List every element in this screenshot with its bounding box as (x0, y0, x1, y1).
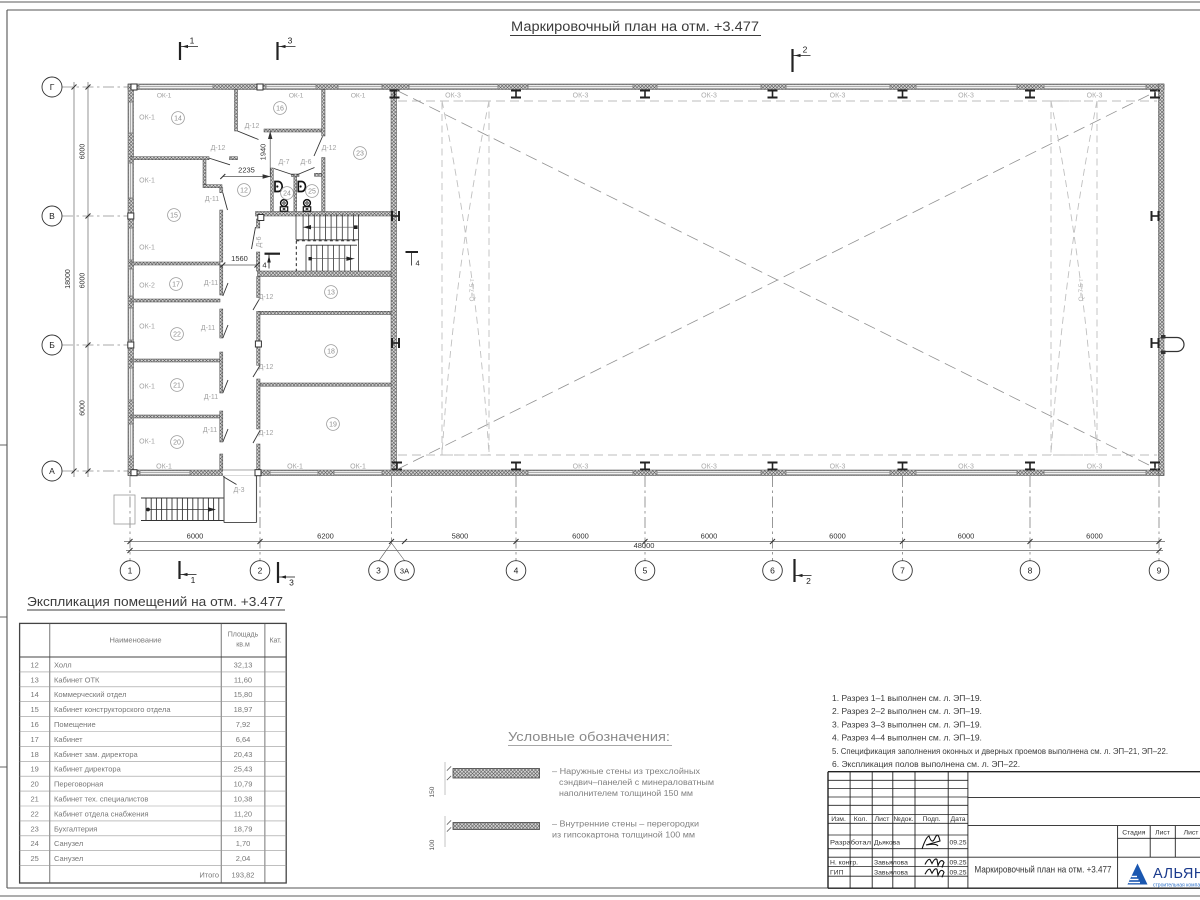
svg-text:6. Экспликация полов выполнена: 6. Экспликация полов выполнена см. л. ЭП… (832, 759, 1020, 769)
svg-text:Д-11: Д-11 (203, 427, 217, 434)
svg-text:ОК-3: ОК-3 (958, 93, 974, 100)
svg-text:ОК-3: ОК-3 (830, 93, 846, 100)
svg-text:ОК-3: ОК-3 (701, 464, 717, 471)
svg-text:Маркировочный план на отм. +3.: Маркировочный план на отм. +3.477 (975, 865, 1112, 876)
svg-text:Н. контр.: Н. контр. (830, 860, 858, 867)
svg-text:6,64: 6,64 (236, 735, 251, 744)
svg-text:ОК-1: ОК-1 (139, 384, 155, 391)
svg-text:21: 21 (31, 795, 39, 804)
svg-text:Д-3: Д-3 (234, 487, 245, 494)
svg-text:5. Спецификация заполнения око: 5. Спецификация заполнения оконных и две… (832, 746, 1168, 756)
svg-text:Кабинет: Кабинет (54, 735, 83, 744)
svg-text:Переговорная: Переговорная (54, 780, 103, 789)
svg-text:Завьялова: Завьялова (874, 869, 908, 876)
svg-text:ОК-1: ОК-1 (157, 93, 172, 100)
svg-text:2: 2 (258, 566, 263, 576)
svg-text:20,43: 20,43 (234, 750, 253, 759)
svg-text:№док.: №док. (894, 816, 914, 823)
svg-text:14: 14 (31, 690, 39, 699)
svg-text:Кол.: Кол. (854, 816, 868, 823)
svg-text:09.25: 09.25 (949, 840, 966, 847)
svg-text:Подп.: Подп. (922, 816, 940, 823)
svg-text:6000: 6000 (958, 532, 975, 541)
svg-text:19: 19 (31, 765, 39, 774)
svg-text:11,60: 11,60 (234, 675, 252, 684)
svg-text:16: 16 (276, 106, 284, 113)
svg-text:наполнителем толщиной 150 мм: наполнителем толщиной 150 мм (559, 789, 693, 798)
svg-text:Кабинет конструкторского отдел: Кабинет конструкторского отдела (54, 705, 171, 714)
svg-text:6000: 6000 (80, 273, 87, 289)
svg-text:Завьялова: Завьялова (874, 860, 908, 867)
svg-text:18000: 18000 (65, 269, 72, 289)
svg-text:13: 13 (327, 290, 335, 297)
svg-text:2: 2 (806, 576, 811, 586)
svg-text:ОК-3: ОК-3 (573, 464, 589, 471)
svg-text:ОК-1: ОК-1 (289, 93, 304, 100)
svg-text:7,92: 7,92 (236, 720, 251, 729)
svg-text:1: 1 (190, 36, 195, 46)
svg-text:Экспликация помещений на отм.: Экспликация помещений на отм. +3.477 (27, 594, 283, 609)
svg-text:6000: 6000 (80, 400, 87, 416)
svg-text:22: 22 (31, 809, 39, 818)
svg-text:17: 17 (172, 282, 180, 289)
svg-text:32,13: 32,13 (234, 660, 253, 669)
svg-text:Д-11: Д-11 (204, 394, 218, 401)
svg-text:ОК-1: ОК-1 (139, 324, 155, 331)
svg-text:сэндвич–панелей с минераловатн: сэндвич–панелей с минераловатным (559, 778, 714, 787)
svg-text:Холл: Холл (54, 660, 72, 669)
svg-text:Д-12: Д-12 (211, 145, 226, 152)
svg-text:5: 5 (643, 566, 648, 576)
svg-text:8: 8 (1028, 566, 1033, 576)
svg-text:ОК-3: ОК-3 (701, 93, 717, 100)
svg-text:48000: 48000 (634, 541, 655, 550)
svg-text:ОК-1: ОК-1 (350, 464, 366, 471)
svg-text:кв.м: кв.м (236, 642, 250, 649)
svg-text:ОК-1: ОК-1 (351, 93, 366, 100)
svg-text:1,70: 1,70 (236, 839, 251, 848)
svg-text:ОК-1: ОК-1 (287, 464, 303, 471)
svg-text:6200: 6200 (317, 532, 334, 541)
svg-text:4. Разрез 4–4 выполнен см. л.: 4. Разрез 4–4 выполнен см. л. ЭП–19. (832, 733, 982, 743)
svg-text:– Наружные стены из трехслойны: – Наружные стены из трехслойных (552, 767, 700, 776)
svg-text:из гипсокартона толщиной 100 м: из гипсокартона толщиной 100 мм (552, 831, 695, 840)
svg-text:24: 24 (283, 191, 291, 198)
svg-text:4: 4 (514, 566, 519, 576)
svg-text:Кабинет отдела снабжения: Кабинет отдела снабжения (54, 809, 149, 818)
svg-text:24: 24 (31, 839, 39, 848)
svg-text:Д-12: Д-12 (245, 123, 260, 130)
svg-text:20: 20 (31, 780, 39, 789)
svg-text:1: 1 (128, 566, 133, 576)
svg-text:ОК-3: ОК-3 (958, 464, 974, 471)
svg-text:В: В (49, 211, 55, 221)
svg-text:10,38: 10,38 (234, 795, 253, 804)
svg-text:09.25: 09.25 (949, 869, 966, 876)
svg-text:Разработал: Разработал (830, 839, 871, 847)
svg-text:Д-12: Д-12 (259, 294, 274, 301)
svg-text:Д-11: Д-11 (204, 280, 218, 287)
svg-text:3: 3 (289, 578, 294, 588)
svg-text:2: 2 (803, 45, 808, 55)
svg-text:Площадь: Площадь (228, 632, 259, 639)
svg-text:Бухгалтерия: Бухгалтерия (54, 824, 97, 833)
svg-text:Маркировочный план на отм. +3.: Маркировочный план на отм. +3.477 (511, 19, 759, 34)
svg-text:Кабинет тех. специалистов: Кабинет тех. специалистов (54, 795, 148, 804)
svg-text:Дьякова: Дьякова (874, 840, 900, 847)
svg-text:ОК-3: ОК-3 (573, 93, 589, 100)
svg-text:6000: 6000 (572, 532, 589, 541)
svg-text:3: 3 (288, 36, 293, 46)
svg-text:4: 4 (416, 259, 420, 268)
svg-text:Кабинет зам. директора: Кабинет зам. директора (54, 750, 139, 759)
svg-text:21: 21 (173, 383, 181, 390)
svg-text:10,79: 10,79 (234, 780, 253, 789)
svg-text:18,97: 18,97 (234, 705, 253, 714)
svg-text:6000: 6000 (80, 144, 87, 160)
svg-text:Лист: Лист (875, 816, 890, 823)
svg-text:25: 25 (31, 854, 39, 863)
svg-text:Д-12: Д-12 (259, 430, 274, 437)
svg-text:Д-12: Д-12 (259, 364, 274, 371)
svg-text:23: 23 (356, 151, 364, 158)
svg-text:18: 18 (327, 349, 335, 356)
svg-text:Q=7.5 т: Q=7.5 т (1078, 279, 1085, 302)
svg-text:15,80: 15,80 (234, 690, 253, 699)
svg-text:25,43: 25,43 (234, 765, 253, 774)
svg-text:09.25: 09.25 (949, 860, 966, 867)
svg-text:150: 150 (429, 786, 436, 797)
svg-text:15: 15 (170, 213, 178, 220)
svg-text:3: 3 (376, 566, 381, 576)
svg-text:Д-11: Д-11 (205, 196, 219, 203)
svg-text:6000: 6000 (187, 532, 204, 541)
svg-text:Д-7: Д-7 (279, 159, 290, 166)
svg-text:Санузел: Санузел (54, 839, 83, 848)
svg-text:Лист: Лист (1155, 830, 1170, 837)
svg-text:ОК-1: ОК-1 (156, 464, 172, 471)
svg-text:4: 4 (262, 261, 266, 270)
svg-text:1560: 1560 (231, 254, 248, 263)
svg-text:Д-12: Д-12 (322, 145, 337, 152)
svg-text:6000: 6000 (701, 532, 718, 541)
svg-text:16: 16 (31, 720, 39, 729)
svg-text:100: 100 (429, 839, 436, 850)
svg-text:Условные обозначения:: Условные обозначения: (508, 730, 670, 744)
svg-text:6: 6 (770, 566, 775, 576)
svg-text:ОК-2: ОК-2 (139, 283, 155, 290)
svg-text:22: 22 (173, 332, 181, 339)
svg-text:1: 1 (191, 575, 196, 585)
svg-text:15: 15 (31, 705, 39, 714)
svg-text:АЛЬЯНС: АЛЬЯНС (1153, 866, 1200, 882)
svg-text:ГИП: ГИП (830, 869, 844, 876)
svg-text:Кат.: Кат. (269, 638, 281, 645)
svg-text:1940: 1940 (259, 144, 268, 161)
svg-text:193,82: 193,82 (232, 871, 255, 880)
svg-text:2. Разрез 2–2 выполнен см. л.: 2. Разрез 2–2 выполнен см. л. ЭП–19. (832, 706, 982, 716)
svg-text:17: 17 (31, 735, 39, 744)
svg-text:Помещение: Помещение (54, 720, 96, 729)
svg-text:Д-6: Д-6 (301, 159, 312, 166)
svg-text:Г: Г (50, 82, 55, 92)
svg-text:11,20: 11,20 (234, 809, 252, 818)
svg-text:Изм.: Изм. (831, 816, 846, 823)
svg-text:ОК-1: ОК-1 (139, 439, 155, 446)
svg-text:12: 12 (240, 188, 248, 195)
svg-text:ОК-3: ОК-3 (1087, 464, 1103, 471)
svg-text:Д-11: Д-11 (201, 325, 215, 332)
svg-text:Коммерческий отдел: Коммерческий отдел (54, 690, 126, 699)
svg-text:18,79: 18,79 (234, 824, 253, 833)
svg-text:ОК-3: ОК-3 (445, 93, 461, 100)
svg-text:1. Разрез 1–1 выполнен см. л.: 1. Разрез 1–1 выполнен см. л. ЭП–19. (832, 693, 982, 703)
svg-text:Наименование: Наименование (110, 636, 162, 645)
svg-text:А: А (49, 466, 55, 476)
svg-text:7: 7 (900, 566, 905, 576)
svg-text:Дата: Дата (950, 816, 965, 823)
svg-text:9: 9 (1157, 566, 1162, 576)
svg-text:– Внутренние стены – перегород: – Внутренние стены – перегородки (552, 820, 699, 829)
svg-text:23: 23 (31, 824, 39, 833)
svg-text:Б: Б (49, 340, 55, 350)
svg-text:Д-6: Д-6 (256, 236, 263, 247)
svg-text:2235: 2235 (238, 166, 255, 175)
svg-text:Кабинет директора: Кабинет директора (54, 765, 122, 774)
svg-text:ОК-1: ОК-1 (139, 245, 155, 252)
svg-text:12: 12 (31, 660, 39, 669)
svg-text:ОК-3: ОК-3 (830, 464, 846, 471)
svg-text:19: 19 (329, 422, 337, 429)
svg-text:20: 20 (173, 440, 181, 447)
svg-text:Стадия: Стадия (1122, 830, 1145, 837)
svg-text:Q=7.5 т: Q=7.5 т (469, 279, 476, 302)
svg-text:Кабинет ОТК: Кабинет ОТК (54, 675, 100, 684)
svg-text:ОК-1: ОК-1 (139, 178, 155, 185)
svg-text:ОК-3: ОК-3 (1087, 93, 1103, 100)
svg-text:строительная компания: строительная компания (1153, 883, 1200, 889)
svg-text:18: 18 (31, 750, 39, 759)
svg-text:6000: 6000 (829, 532, 846, 541)
svg-text:Итого: Итого (199, 871, 219, 880)
svg-text:3А: 3А (400, 567, 409, 576)
svg-text:25: 25 (308, 189, 316, 196)
svg-text:Лист: Лист (1184, 830, 1199, 837)
svg-text:14: 14 (174, 116, 182, 123)
svg-text:2,04: 2,04 (236, 854, 251, 863)
svg-text:5800: 5800 (452, 532, 469, 541)
svg-text:ОК-1: ОК-1 (139, 115, 155, 122)
svg-text:6000: 6000 (1086, 532, 1103, 541)
svg-text:13: 13 (31, 675, 39, 684)
svg-text:3. Разрез 3–3 выполнен см. л.: 3. Разрез 3–3 выполнен см. л. ЭП–19. (832, 719, 982, 729)
svg-text:Санузел: Санузел (54, 854, 83, 863)
